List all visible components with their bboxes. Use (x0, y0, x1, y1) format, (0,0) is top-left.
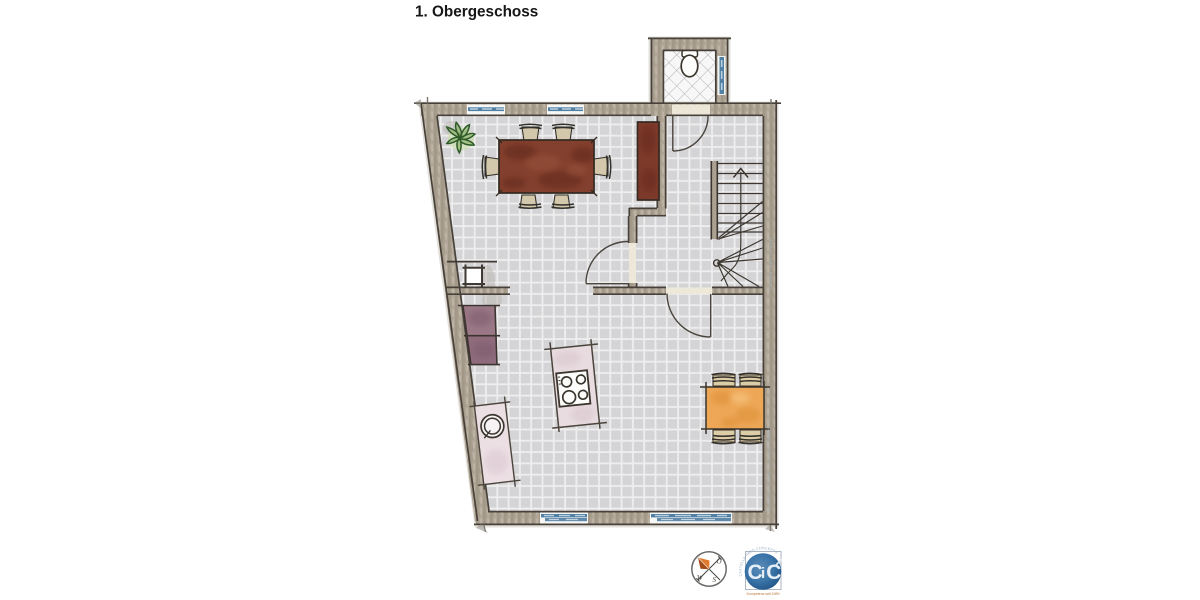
svg-text:S: S (713, 576, 717, 584)
svg-text:Kompetenz seit 1989: Kompetenz seit 1989 (747, 591, 780, 596)
svg-text:Castella Immo Concept: Castella Immo Concept (768, 236, 773, 290)
svg-text:1. Obergeschoss: 1. Obergeschoss (415, 4, 538, 21)
svg-text:i: i (761, 565, 765, 582)
svg-text:Castella Immo Concept GmbH: Castella Immo Concept GmbH (767, 427, 773, 512)
svg-text:C: C (766, 561, 781, 584)
svg-text:O: O (717, 558, 722, 566)
